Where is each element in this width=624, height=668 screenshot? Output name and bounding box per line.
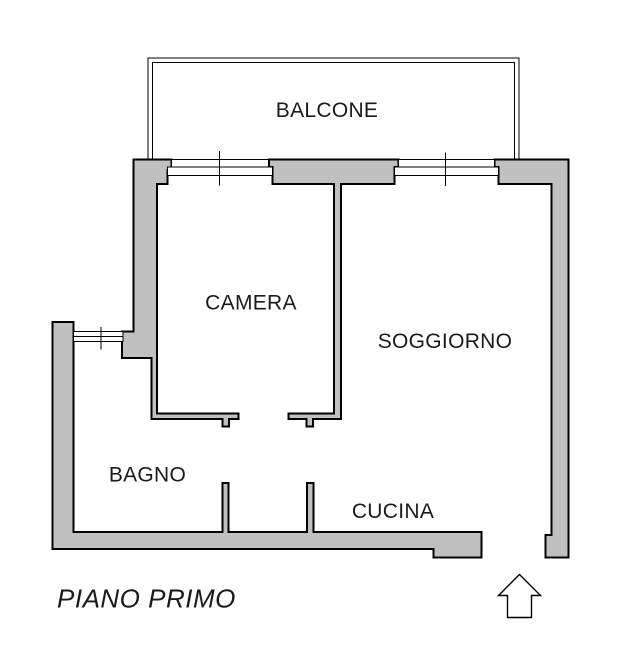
window-bagno: [74, 327, 124, 350]
room-label-cucina: CUCINA: [352, 500, 434, 523]
floor-plan-page: BALCONE CAMERA SOGGIORNO BAGNO CUCINA PI…: [0, 0, 624, 668]
room-label-bagno: BAGNO: [109, 464, 186, 487]
window-soggiorno-inner-sash: [395, 167, 499, 176]
floor-plan-drawing: BALCONE CAMERA SOGGIORNO BAGNO CUCINA PI…: [0, 0, 624, 668]
window-camera: [168, 151, 273, 186]
floor-label: PIANO PRIMO: [57, 584, 236, 614]
window-soggiorno: [395, 153, 499, 187]
wall-top-right-and-right-exterior: [495, 160, 569, 558]
room-label-camera: CAMERA: [205, 292, 297, 315]
entrance-arrow-icon: [499, 575, 541, 618]
room-label-balcone: BALCONE: [276, 99, 378, 122]
window-soggiorno-outer-sash: [399, 160, 495, 168]
room-label-soggiorno: SOGGIORNO: [378, 330, 513, 353]
